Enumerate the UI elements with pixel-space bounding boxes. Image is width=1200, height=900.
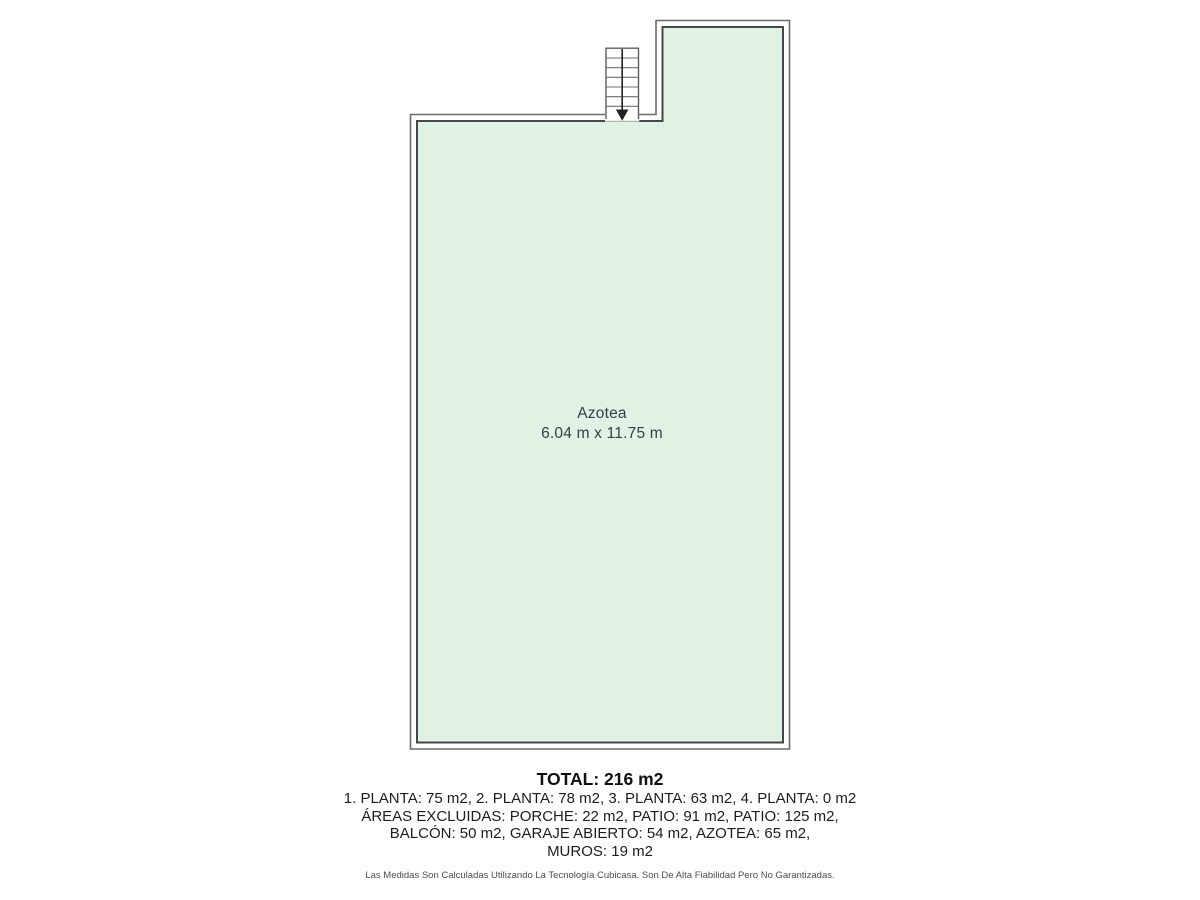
excluded-areas-line-2: BALCÓN: 50 m2, GARAJE ABIERTO: 54 m2, AZ… — [0, 825, 1200, 843]
staircase — [606, 48, 639, 121]
walls-area-line: MUROS: 19 m2 — [0, 843, 1200, 861]
room-label: Azotea 6.04 m x 11.75 m — [412, 404, 792, 443]
planta-areas-line: 1. PLANTA: 75 m2, 2. PLANTA: 78 m2, 3. P… — [0, 790, 1200, 808]
room-dimensions: 6.04 m x 11.75 m — [412, 424, 792, 444]
excluded-areas-line-1: ÁREAS EXCLUIDAS: PORCHE: 22 m2, PATIO: 9… — [0, 808, 1200, 826]
room-name: Azotea — [412, 404, 792, 424]
floorplan-page: Azotea 6.04 m x 11.75 m TOTAL: 216 m2 1.… — [0, 0, 1200, 900]
measurement-disclaimer: Las Medidas Son Calculadas Utilizando La… — [0, 870, 1200, 882]
area-summary: TOTAL: 216 m2 1. PLANTA: 75 m2, 2. PLANT… — [0, 768, 1200, 882]
room-floor — [417, 27, 783, 743]
floorplan-drawing — [0, 0, 1200, 900]
total-area: TOTAL: 216 m2 — [0, 768, 1200, 790]
